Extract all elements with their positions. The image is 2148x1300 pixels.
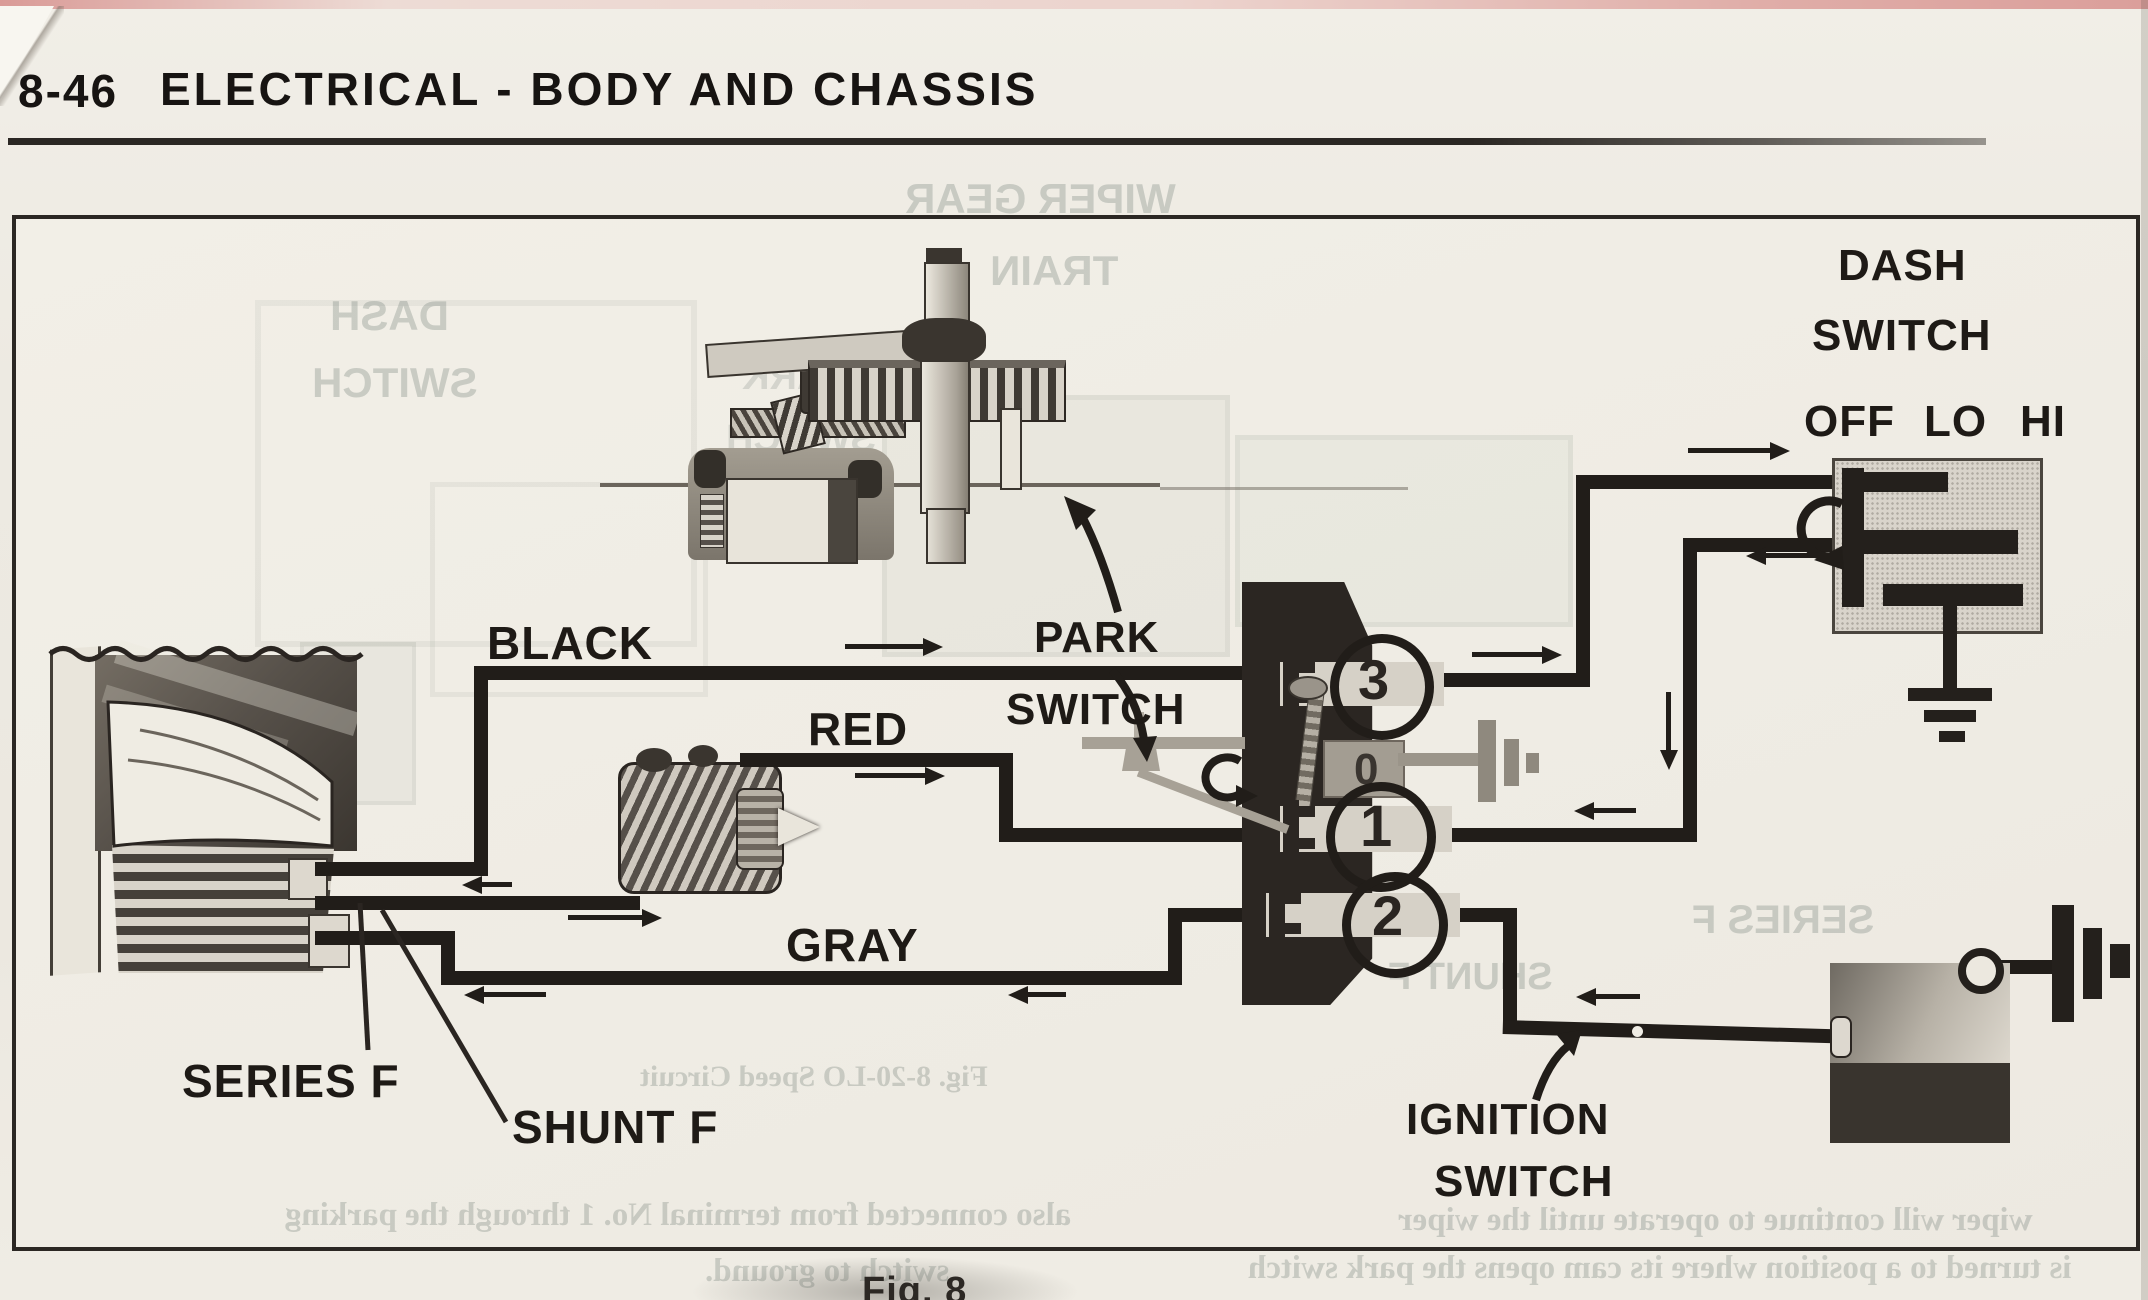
shunt-f-leader-line bbox=[382, 910, 506, 1122]
dash-switch-position-lo: LO bbox=[1924, 400, 1987, 444]
shunt-field-label: SHUNT F bbox=[512, 1104, 718, 1150]
park-switch-label-line1: PARK bbox=[1034, 616, 1159, 660]
ignition-switch-label-line2: SWITCH bbox=[1434, 1160, 1614, 1204]
wire-black-label: BLACK bbox=[487, 620, 653, 666]
figure-caption: Fig. 8 bbox=[862, 1272, 967, 1300]
series-f-leader-line bbox=[360, 903, 368, 1050]
wire-gray-label: GRAY bbox=[786, 922, 919, 968]
ignition-leader-arrow bbox=[1536, 1046, 1568, 1100]
reverse-hook-arrow bbox=[1801, 501, 1842, 557]
park-switch-leader-arrowhead-up bbox=[1064, 496, 1096, 530]
series-field-label: SERIES F bbox=[182, 1058, 400, 1104]
park-switch-leader-arrowhead-down bbox=[1133, 736, 1157, 762]
dash-switch-position-off: OFF bbox=[1804, 400, 1895, 444]
ignition-switch-label-line1: IGNITION bbox=[1406, 1098, 1610, 1142]
dash-switch-position-hi: HI bbox=[2020, 400, 2066, 444]
motor-housing-wavy-edge bbox=[50, 649, 362, 660]
wire-red-label: RED bbox=[808, 706, 908, 752]
scanned-manual-page: 8-46 ELECTRICAL - BODY AND CHASSIS DASH … bbox=[0, 0, 2148, 1300]
reverse-hook-arrow bbox=[1205, 757, 1240, 797]
motor-pole-shoe bbox=[108, 702, 332, 846]
reverse-hook-arrowhead bbox=[1814, 546, 1844, 570]
dash-switch-label-line1: DASH bbox=[1838, 244, 1967, 288]
dash-switch-label-line2: SWITCH bbox=[1812, 314, 1992, 358]
park-switch-leader-arrow-up bbox=[1082, 516, 1118, 612]
reverse-hook-arrowhead bbox=[1236, 785, 1258, 807]
park-switch-label-line2: SWITCH bbox=[1006, 688, 1186, 732]
